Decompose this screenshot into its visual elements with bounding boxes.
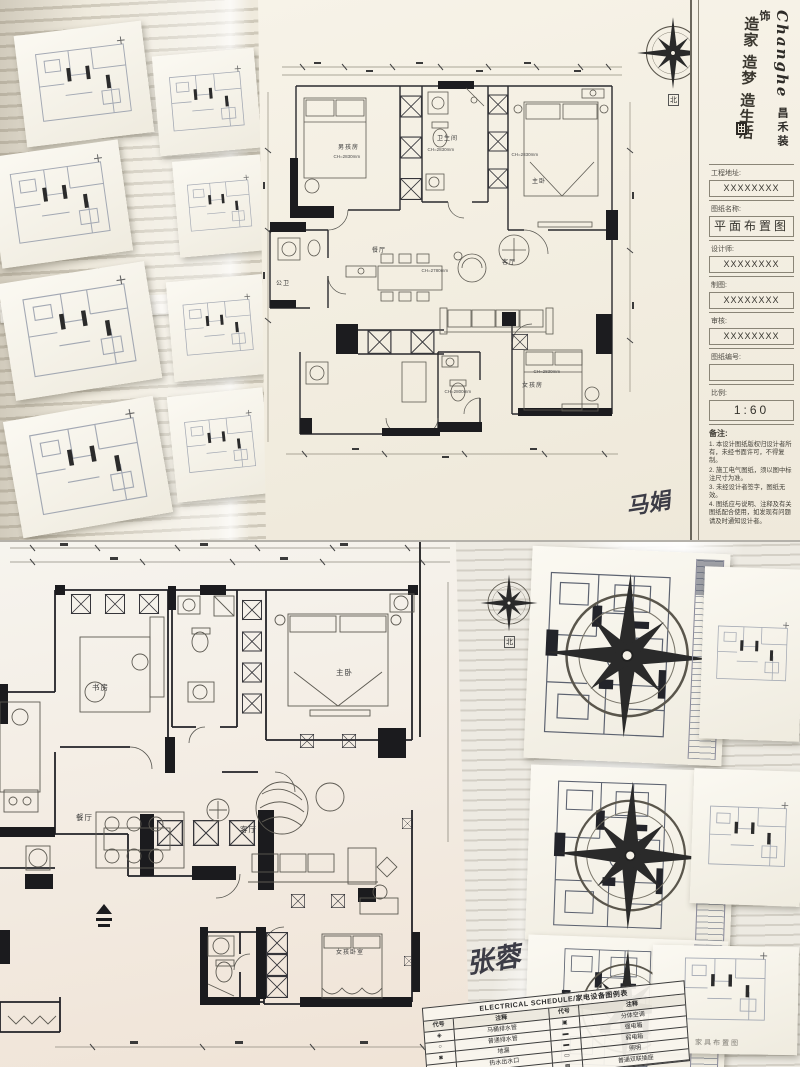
room-label-girl: 女孩房 [522, 380, 543, 389]
floor-plan-bottom-drawing [0, 542, 462, 1064]
room-label-guest-bath: 公卫 [276, 278, 290, 287]
room-label-boy: 男孩房 [338, 142, 359, 151]
walls [0, 590, 418, 1032]
room-label-master: 主卧 [336, 667, 353, 678]
field-label: 设计师: [709, 240, 794, 255]
pinned-sheet [690, 768, 800, 907]
field-value: XXXXXXXX [709, 256, 794, 273]
dim-living: CH=2780mm [421, 268, 448, 273]
pinned-sheet [152, 48, 262, 157]
designer-signature: 马娟 [624, 483, 672, 521]
designer-signature: 张蓉 [463, 934, 522, 981]
title-block-inner: Changhe 昌禾装饰 造家 造梦 造生活 工程地址: XXXXXXXX 图纸… [698, 0, 799, 540]
main-plan-sheet: 北 [248, 0, 800, 540]
room-label-living: 客厅 [502, 257, 516, 266]
dimension-lines [268, 67, 630, 454]
photo-top: 北 [0, 0, 800, 540]
wardrobe-hatches [71, 594, 414, 998]
notes-block: 备注: 1. 本设计图纸版权归设计者所有，未经书面许可，不得复制。 2. 施工电… [709, 424, 794, 527]
field-value [709, 364, 794, 381]
scale-value: 1:60 [709, 400, 794, 421]
dim-girl-bath: CH=2800mm [444, 389, 471, 394]
pinned-sheet [172, 154, 268, 257]
notes-title: 备注: [709, 428, 794, 439]
field-label: 审核: [709, 312, 794, 327]
title-block: Changhe 昌禾装饰 造家 造梦 造生活 工程地址: XXXXXXXX 图纸… [690, 0, 800, 540]
dim-girl: CH=2830mm [533, 369, 560, 374]
wall-chunks [0, 585, 420, 1007]
note-line: 1. 本设计图纸版权归设计者所有，未经书面许可，不得复制。 [709, 441, 794, 466]
room-label-master: 主卧 [532, 176, 546, 185]
field-value: XXXXXXXX [709, 180, 794, 197]
room-label-bath: 卫生间 [437, 133, 458, 142]
dimension-lines [10, 548, 450, 1047]
pinned-sheet [0, 139, 133, 268]
pinned-sheet [166, 274, 270, 382]
brand-logo-en: Changhe [773, 10, 791, 98]
title-fields: 工程地址: XXXXXXXX 图纸名称: 平面布置图 设计师: XXXXXXXX… [709, 164, 794, 424]
dimension-text-marks [263, 62, 634, 458]
field-label: 图纸编号: [709, 348, 794, 363]
room-label-dining: 餐厅 [76, 812, 93, 823]
room-label-girl: 女孩卧室 [336, 947, 364, 956]
dim-bath: CH=2830mm [427, 147, 454, 152]
field-label: 比例: [709, 384, 794, 399]
photo-of-floor-plans: 北 [0, 0, 800, 1067]
field-value: XXXXXXXX [709, 292, 794, 309]
field-value: XXXXXXXX [709, 328, 794, 345]
pinned-sheet [699, 566, 800, 741]
room-label-dining: 餐厅 [372, 245, 386, 254]
pinned-sheet [14, 21, 155, 148]
field-label: 工程地址: [709, 164, 794, 179]
note-line: 3. 未经设计者签字，图纸无效。 [709, 484, 794, 500]
north-label: 北 [668, 94, 679, 106]
seal-icon [736, 122, 747, 135]
north-label: 北 [504, 636, 515, 648]
dim-master: CH=2830mm [511, 152, 538, 157]
entrance-arrow-icon [96, 904, 112, 927]
drawing-name: 平面布置图 [709, 216, 794, 237]
main-plan-sheet-bottom: 书房 主卧 餐厅 客厅 女孩卧室 [0, 542, 470, 1067]
pinned-sheet [0, 261, 162, 401]
room-label-living: 客厅 [240, 824, 257, 835]
sheet-caption: 家具布置图 [695, 1037, 740, 1048]
photo-bottom: 家具布置图 [0, 540, 800, 1067]
field-label: 图纸名称: [709, 200, 794, 215]
pinned-sheet [167, 387, 274, 502]
note-line: 2. 施工电气图纸，须以图中标注尺寸为准。 [709, 467, 794, 483]
dim-boy: CH=2830mm [333, 154, 360, 159]
room-label-study: 书房 [92, 682, 109, 693]
note-line: 4. 图纸应与说明、注释及有关图纸配合使用，如发现有问题请及时通知设计者。 [709, 501, 794, 526]
compass-icon [478, 572, 540, 634]
field-label: 制图: [709, 276, 794, 291]
floor-plan-top-drawing [262, 62, 636, 462]
